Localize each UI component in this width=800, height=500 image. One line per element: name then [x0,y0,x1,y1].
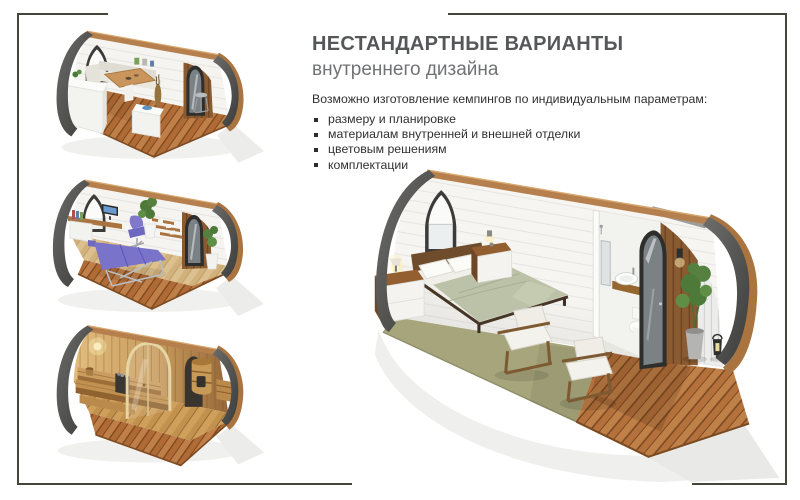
list-item-label: цветовым решениям [328,142,447,157]
kitchen-pod-render [36,24,272,174]
list-item: материалам внутренней и внешней отделки [314,127,782,142]
bedroom-pod-render [358,168,782,490]
bullet-marker [314,133,318,137]
kitchen-island [132,104,163,137]
list-item: цветовым решениям [314,142,782,157]
list-item-label: размеру и планировке [328,112,456,127]
glass-partition [127,343,170,418]
bullet-marker [314,163,318,167]
porch-door [639,230,666,369]
list-item-label: материалам внутренней и внешней отделки [328,127,580,142]
page-subtitle: внутреннего дизайна [312,59,623,81]
bullet-marker [314,148,318,152]
office-pod-image [32,174,272,326]
page-title: НЕСТАНДАРТНЫЕ ВАРИАНТЫ [312,33,623,56]
slide: НЕСТАНДАРТНЫЕ ВАРИАНТЫ внутреннего дизай… [0,0,800,500]
body-text-block: Возможно изготовление кемпингов по индив… [312,92,782,173]
header: НЕСТАНДАРТНЫЕ ВАРИАНТЫ внутреннего дизай… [312,33,623,81]
bullet-marker [314,118,318,122]
kitchen-pod-image [36,24,272,174]
office-pod-render [32,174,272,326]
sauna-pod-image [32,318,270,478]
bullet-list: размеру и планировке материалам внутренн… [314,112,782,173]
sauna-pod-render [32,318,270,478]
frame-border-top-left [17,13,108,15]
frame-border-bottom-left [17,483,352,485]
intro-paragraph: Возможно изготовление кемпингов по индив… [312,92,782,107]
frame-border-left [17,13,19,485]
nightstand-right [471,242,511,282]
list-item: размеру и планировке [314,112,782,127]
frame-border-right [785,13,787,485]
barrel-stove [192,358,212,394]
frame-border-top-right [448,13,787,15]
bedroom-pod-image [358,168,782,490]
